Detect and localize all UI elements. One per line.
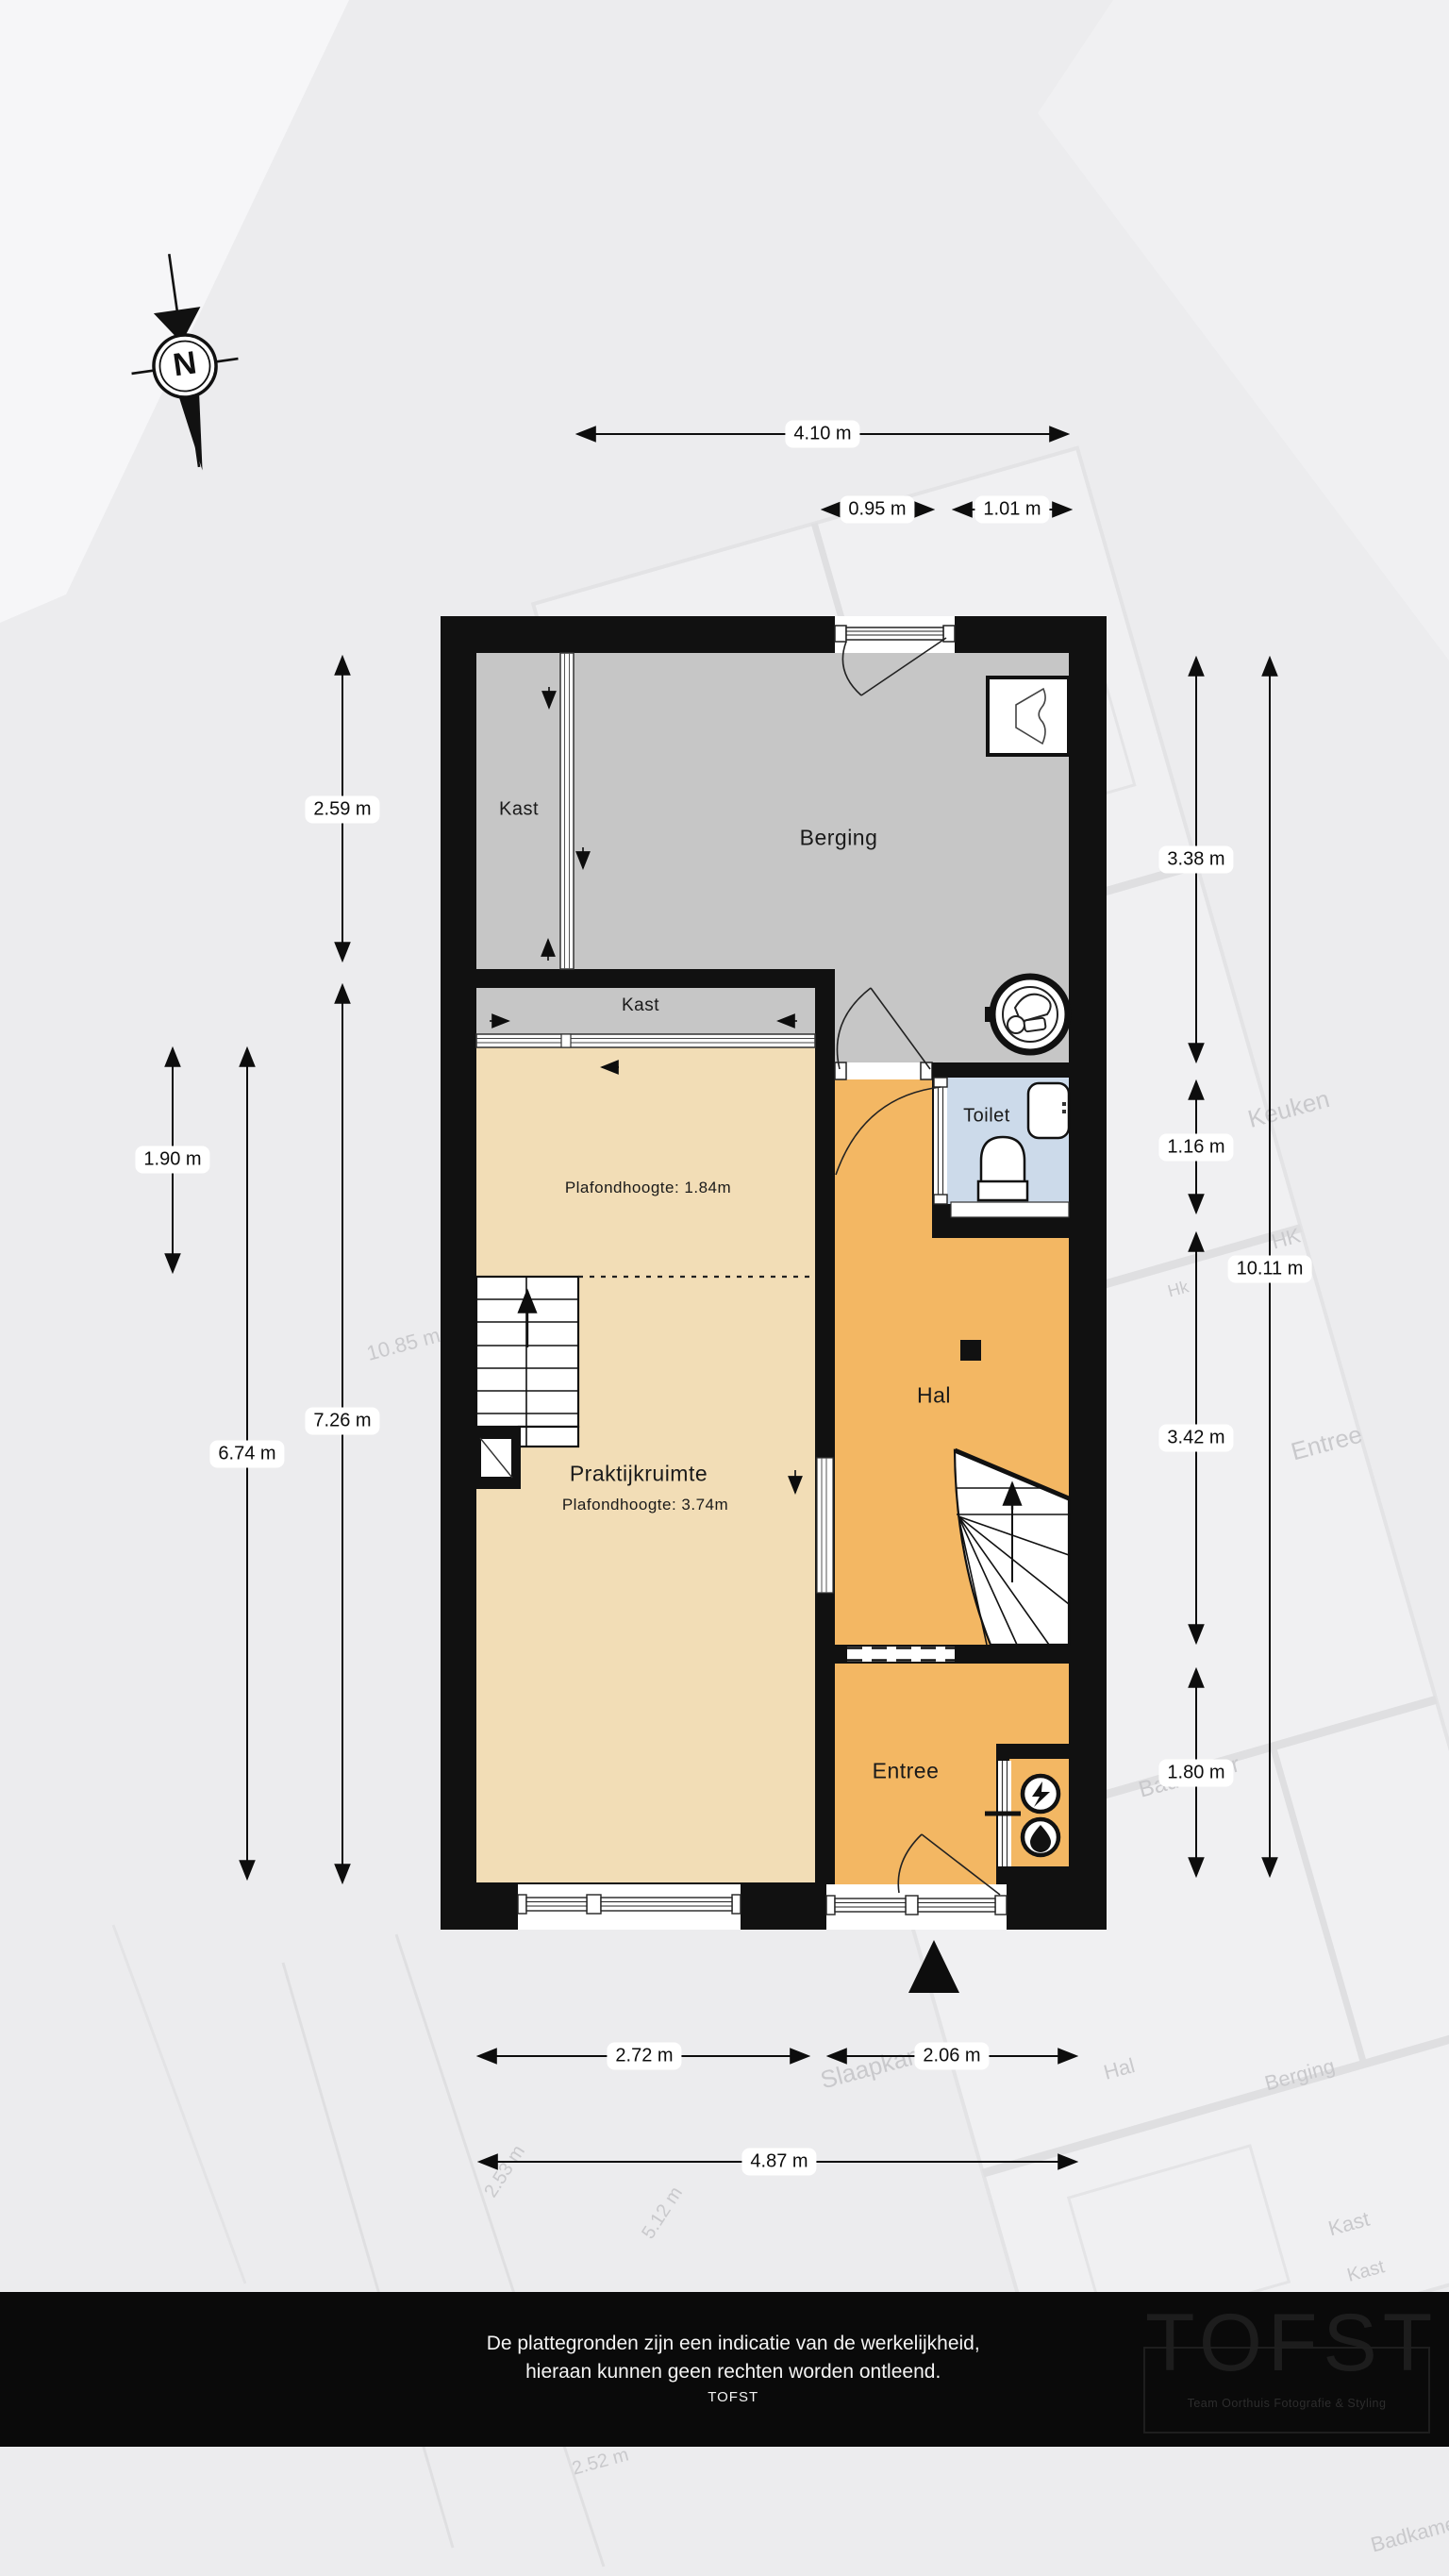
- disclaimer-brand: TOFST: [487, 2386, 980, 2409]
- disclaimer-line1: De plattegronden zijn een indicatie van …: [487, 2330, 980, 2358]
- floorplan-graphic: [0, 0, 1449, 2576]
- wall-kast-band: [476, 969, 835, 988]
- entrance-marker: [908, 1940, 959, 1993]
- understairs-closet: [475, 1427, 521, 1489]
- dim-left-inner-bottom: 6.74 m: [209, 1441, 284, 1468]
- dim-right-total: 10.11 m: [1228, 1256, 1312, 1283]
- dim-right-seg2: 1.16 m: [1158, 1134, 1233, 1162]
- toilet-bowl-icon: [978, 1137, 1027, 1200]
- praktijk-hal-door: [817, 1458, 833, 1593]
- dim-top-seg1: 0.95 m: [840, 496, 914, 524]
- hal-column: [960, 1340, 981, 1361]
- dim-left-outer-bottom: 7.26 m: [305, 1408, 379, 1435]
- dim-bottom-total: 4.87 m: [741, 2149, 816, 2176]
- dim-bottom-seg2: 2.06 m: [914, 2043, 989, 2070]
- compass-north-label: N: [171, 344, 199, 384]
- dim-right-seg1: 3.38 m: [1158, 846, 1233, 874]
- room-label-berging: Berging: [800, 826, 878, 851]
- water-meter-icon: [1023, 1819, 1058, 1855]
- dim-left-inner-top: 1.90 m: [135, 1146, 209, 1174]
- room-label-kast-mid: Kast: [622, 995, 659, 1016]
- meter-cupboard: [985, 1744, 1069, 1884]
- disclaimer-text: De plattegronden zijn een indicatie van …: [487, 2330, 980, 2409]
- berging-fixture-icon: [988, 677, 1069, 755]
- room-label-toilet: Toilet: [963, 1106, 1010, 1128]
- stairs-straight: [476, 1277, 578, 1447]
- tofst-logo-frame: [1143, 2347, 1430, 2434]
- dim-right-seg4: 1.80 m: [1158, 1760, 1233, 1787]
- dim-left-outer-top: 2.59 m: [305, 796, 379, 824]
- dim-right-seg3: 3.42 m: [1158, 1425, 1233, 1452]
- tofst-logo-tagline: Team Oorthuis Fotografie & Styling: [1145, 2397, 1428, 2410]
- room-label-entree: Entree: [873, 1759, 940, 1784]
- praktijk-window: [518, 1884, 741, 1930]
- kast-mid-sliding-doors: [476, 1034, 815, 1047]
- room-label-kast-top: Kast: [499, 799, 539, 821]
- electric-meter-icon: [1023, 1776, 1058, 1812]
- disclaimer-line2: hieraan kunnen geen rechten worden ontle…: [487, 2358, 980, 2386]
- room-label-kast-ceiling: Plafondhoogte: 1.84m: [565, 1179, 731, 1197]
- room-label-praktijkruimte: Praktijkruimte: [570, 1462, 708, 1487]
- room-label-hal: Hal: [917, 1383, 951, 1409]
- floorplan-page: Keuken HK Hk Entree 10.85 m Badkamer Sla…: [0, 0, 1449, 2576]
- dim-top-total: 4.10 m: [785, 421, 859, 448]
- hal-entree-opening: [847, 1647, 955, 1662]
- kast-top-partition: [560, 653, 574, 969]
- dim-bottom-seg1: 2.72 m: [607, 2043, 681, 2070]
- room-label-praktijk-ceiling: Plafondhoogte: 3.74m: [562, 1496, 728, 1514]
- dim-top-seg2: 1.01 m: [974, 496, 1049, 524]
